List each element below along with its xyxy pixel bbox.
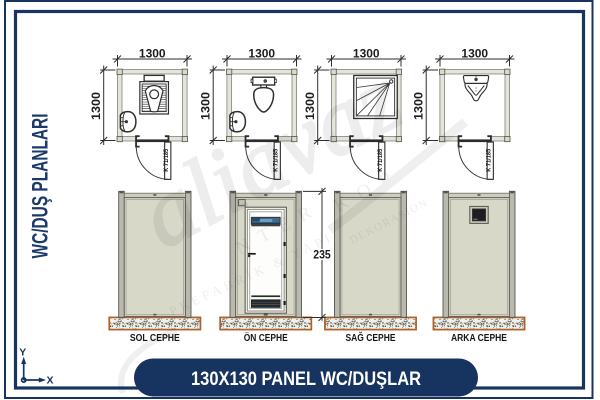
- svg-text:WC/DUŞ PLANLARI: WC/DUŞ PLANLARI: [28, 114, 53, 259]
- svg-text:1300: 1300: [461, 46, 488, 60]
- svg-text:X: X: [46, 375, 53, 387]
- svg-text:ÖN CEPHE: ÖN CEPHE: [244, 331, 288, 344]
- svg-text:1300: 1300: [89, 92, 103, 120]
- svg-text:235: 235: [313, 248, 331, 262]
- svg-text:ARKA CEPHE: ARKA CEPHE: [451, 332, 507, 344]
- svg-text:1300: 1300: [199, 92, 213, 120]
- svg-text:Y: Y: [19, 347, 26, 359]
- svg-text:130X130 PANEL WC/DUŞLAR: 130X130 PANEL WC/DUŞLAR: [191, 368, 421, 390]
- svg-text:1300: 1300: [139, 46, 166, 60]
- svg-text:K 71/185: K 71/185: [485, 148, 492, 171]
- svg-text:SAĞ CEPHE: SAĞ CEPHE: [346, 331, 396, 344]
- svg-text:1300: 1300: [412, 92, 426, 120]
- svg-text:1300: 1300: [248, 46, 275, 60]
